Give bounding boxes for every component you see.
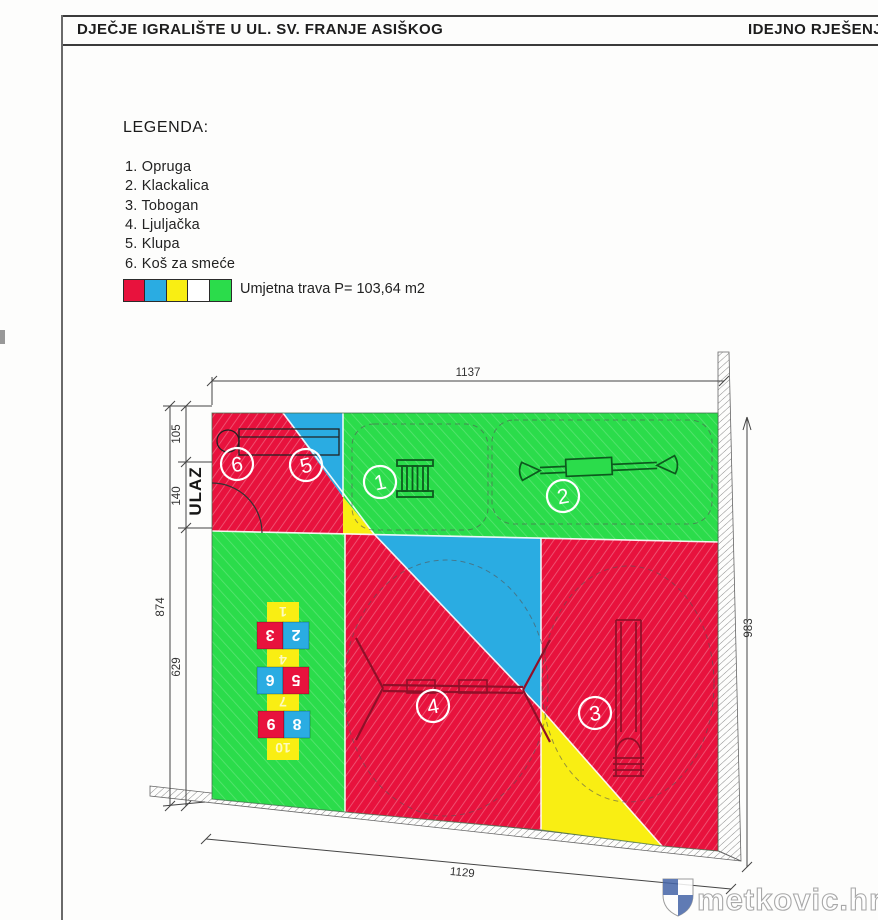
hopscotch-cell: 2 — [291, 626, 300, 643]
hopscotch-cell: 1 — [279, 604, 287, 620]
right-wall — [718, 352, 741, 861]
dim-left-total: 874 — [155, 597, 167, 617]
hopscotch-cell: 5 — [291, 671, 300, 688]
dim-left-seg-105: 105 — [171, 424, 183, 443]
hopscotch-cell: 10 — [275, 740, 291, 756]
hopscotch-cell: 9 — [266, 715, 275, 732]
hopscotch-cell: 4 — [279, 652, 287, 668]
hopscotch: 1 4 7 10 3 2 6 5 9 8 — [257, 602, 310, 760]
entrance-label: ULAZ — [186, 466, 205, 515]
site-plan-drawing: 1 4 7 10 3 2 6 5 9 8 6 5 1 — [0, 0, 878, 920]
dim-left-seg-629: 629 — [171, 657, 183, 676]
hopscotch-cell: 6 — [265, 671, 274, 688]
watermark-text: metkovic.hr — [697, 882, 878, 917]
watermark: metkovic.hr — [663, 879, 878, 917]
shield-quadrant — [663, 879, 678, 895]
dim-bottom: 1129 — [449, 866, 475, 880]
dim-top: 1137 — [456, 367, 481, 379]
zone-top-green-hatch — [343, 413, 718, 542]
hopscotch-cell: 7 — [279, 694, 287, 710]
hopscotch-cell: 3 — [265, 626, 274, 643]
scan-edge-mark — [0, 330, 5, 344]
dim-left-seg-140: 140 — [171, 486, 183, 505]
hopscotch-cell: 8 — [292, 715, 301, 732]
dim-right: 983 — [743, 618, 755, 637]
